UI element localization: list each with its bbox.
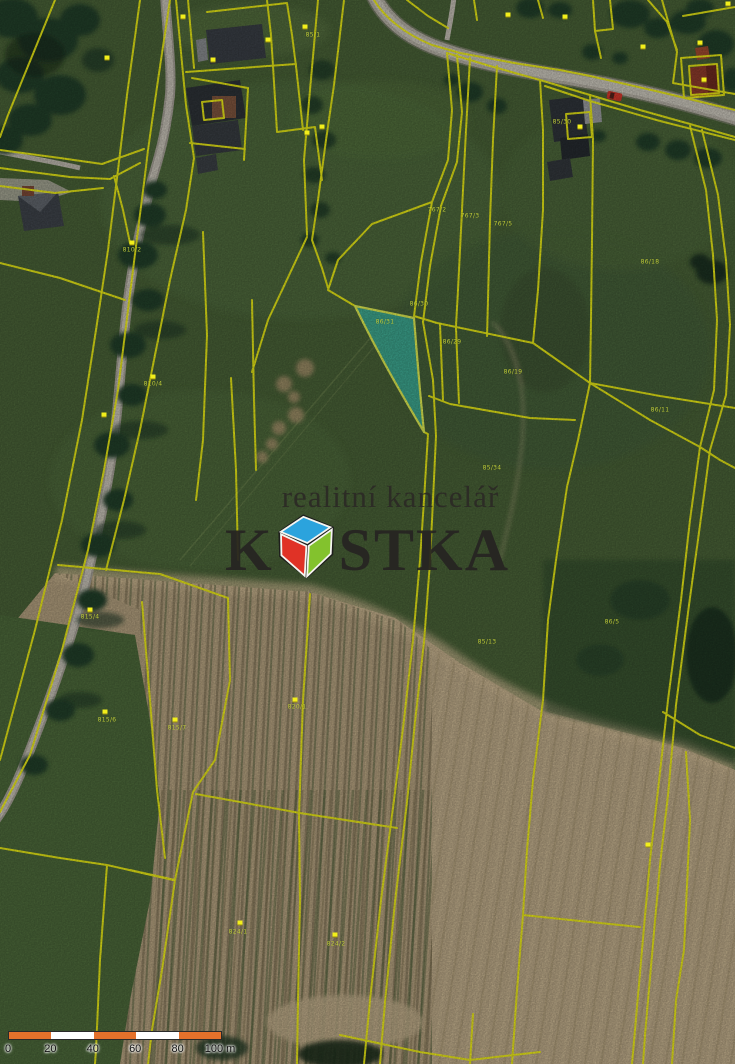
parcel-point-marker — [266, 38, 271, 43]
parcel-number-label: 810/2 — [123, 247, 142, 254]
parcel-point-marker — [578, 125, 583, 130]
parcel-number-label: 86/18 — [641, 259, 660, 266]
parcel-number-label: 820/1 — [288, 704, 307, 711]
parcel-point-marker — [88, 608, 93, 613]
parcel-point-marker — [103, 710, 108, 715]
scalebar-segment — [179, 1032, 221, 1039]
parcel-number-label: 824/2 — [327, 941, 346, 948]
parcel-number-label: 767/3 — [461, 213, 480, 220]
parcel-point-marker — [181, 15, 186, 20]
parcel-point-marker — [563, 15, 568, 20]
parcel-point-marker — [303, 25, 308, 30]
parcel-number-label: 86/19 — [504, 369, 523, 376]
scalebar-tick-label: 80 — [171, 1043, 183, 1055]
parcel-point-marker — [102, 413, 107, 418]
parcel-number-label: 824/1 — [229, 929, 248, 936]
parcel-number-label: 86/11 — [651, 407, 670, 414]
parcel-number-label: 86/30 — [410, 301, 429, 308]
parcel-point-marker — [130, 241, 135, 246]
parcel-number-label: 767/2 — [428, 207, 447, 214]
parcel-number-label: 86/31 — [376, 319, 395, 326]
parcel-number-label: 815/6 — [98, 717, 117, 724]
map-scale-bar: 020406080100 m — [8, 1031, 222, 1057]
parcel-number-label: 810/4 — [144, 381, 163, 388]
parcel-point-marker — [333, 933, 338, 938]
scalebar-labels: 020406080100 m — [8, 1043, 222, 1057]
scalebar-segment — [94, 1032, 136, 1039]
scalebar-segments — [8, 1031, 222, 1040]
cadastral-map-image: 85/1767/2767/3767/585/3086/1886/3086/318… — [0, 0, 735, 1064]
parcel-point-marker — [320, 125, 325, 130]
parcel-point-marker — [105, 56, 110, 61]
parcel-number-label: 85/13 — [478, 639, 497, 646]
aerial-map-canvas — [0, 0, 735, 1064]
scalebar-segment — [136, 1032, 178, 1039]
parcel-point-marker — [238, 921, 243, 926]
parcel-point-marker — [646, 843, 651, 848]
parcel-number-label: 86/29 — [443, 339, 462, 346]
scalebar-tick-label: 100 m — [205, 1043, 236, 1055]
parcel-number-label: 85/30 — [553, 119, 572, 126]
scalebar-tick-label: 40 — [87, 1043, 99, 1055]
scalebar-tick-label: 20 — [44, 1043, 56, 1055]
parcel-number-label: 815/4 — [81, 614, 100, 621]
photo-grain — [0, 0, 735, 1064]
parcel-number-label: 86/5 — [605, 619, 620, 626]
parcel-point-marker — [726, 2, 731, 7]
parcel-point-marker — [173, 718, 178, 723]
parcel-point-marker — [641, 45, 646, 50]
parcel-point-marker — [151, 375, 156, 380]
parcel-point-marker — [211, 58, 216, 63]
scalebar-tick-label: 60 — [129, 1043, 141, 1055]
parcel-number-label: 815/7 — [168, 725, 187, 732]
parcel-point-marker — [702, 78, 707, 83]
scalebar-segment — [9, 1032, 51, 1039]
scalebar-segment — [51, 1032, 93, 1039]
parcel-point-marker — [293, 698, 298, 703]
parcel-point-marker — [506, 13, 511, 18]
parcel-number-label: 767/5 — [494, 221, 513, 228]
scalebar-tick-label: 0 — [5, 1043, 11, 1055]
parcel-number-label: 85/1 — [306, 32, 321, 39]
parcel-point-marker — [305, 131, 310, 136]
parcel-number-label: 85/34 — [483, 465, 502, 472]
parcel-point-marker — [698, 41, 703, 46]
